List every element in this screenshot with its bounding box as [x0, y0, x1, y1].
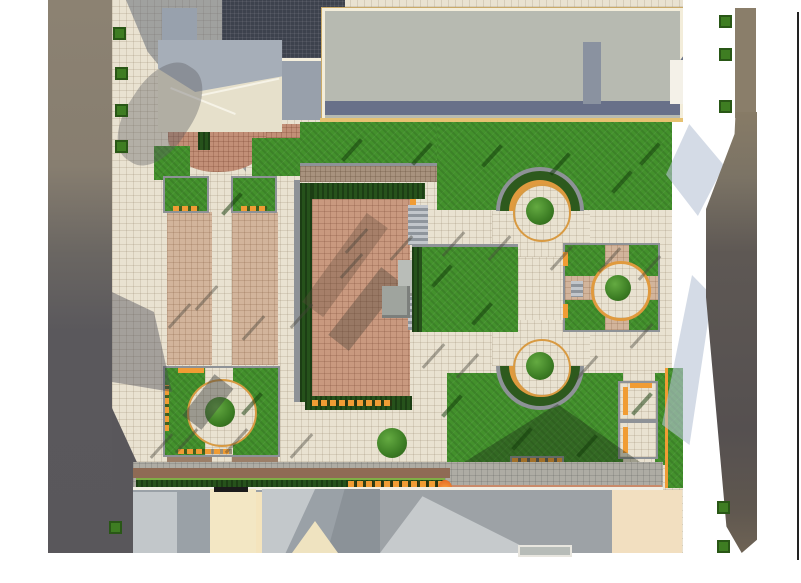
planter-bench	[173, 206, 199, 211]
large-building-parapet-band	[325, 101, 680, 115]
planter-bench	[241, 206, 267, 211]
page-frame-line	[797, 12, 799, 560]
bench-south-orange	[623, 427, 628, 453]
lower-garden-bench-west	[165, 385, 169, 431]
large-building-roof	[322, 8, 683, 121]
planter-square-west	[165, 178, 207, 211]
quadrant-tree	[605, 275, 631, 301]
brown-path-band	[300, 166, 437, 182]
south-cream-patch-east	[612, 490, 682, 553]
monument-lower-block	[382, 286, 410, 318]
street-tree-icon	[109, 521, 122, 534]
hip-roof-cream-gable	[292, 521, 338, 553]
pink-plaza-north-hedge	[312, 183, 425, 199]
lower-garden-bench-north	[178, 368, 204, 373]
upper-plaza-tree	[526, 197, 554, 225]
lower-plaza-tree	[526, 352, 554, 380]
street-tree-icon	[115, 140, 128, 153]
tan-walkway-west	[167, 212, 212, 365]
left-street-band	[48, 0, 112, 553]
street-tree-icon	[113, 27, 126, 40]
quadrant-steps-west	[571, 281, 583, 297]
south-black-band	[214, 487, 248, 492]
quadrant-bench-sw	[563, 304, 568, 318]
street-tree-icon	[719, 48, 732, 61]
street-tree-icon	[115, 104, 128, 117]
street-tree-icon	[115, 67, 128, 80]
pink-plaza-south-bench	[312, 400, 392, 406]
south-hip-roof-house	[262, 489, 380, 553]
south-roof-light-block	[133, 492, 177, 553]
site-plan-rendering	[0, 0, 801, 583]
street-tree-icon	[717, 540, 730, 553]
bench-north-orange	[623, 387, 628, 415]
south-outlined-rect	[518, 545, 572, 557]
street-tree-icon	[719, 100, 732, 113]
tan-walkway-east	[232, 212, 278, 365]
bench-north-top	[630, 383, 652, 388]
maroon-paving-band	[133, 468, 450, 478]
street-tree-icon	[719, 15, 732, 28]
south-cream-building	[210, 489, 256, 553]
central-lawn	[412, 247, 518, 332]
central-round-tree	[377, 428, 407, 458]
right-building-north-strip	[735, 8, 756, 118]
street-tree-icon	[717, 501, 730, 514]
gray-wall-wedge	[583, 42, 601, 104]
central-lawn-west-hedge	[412, 247, 422, 332]
